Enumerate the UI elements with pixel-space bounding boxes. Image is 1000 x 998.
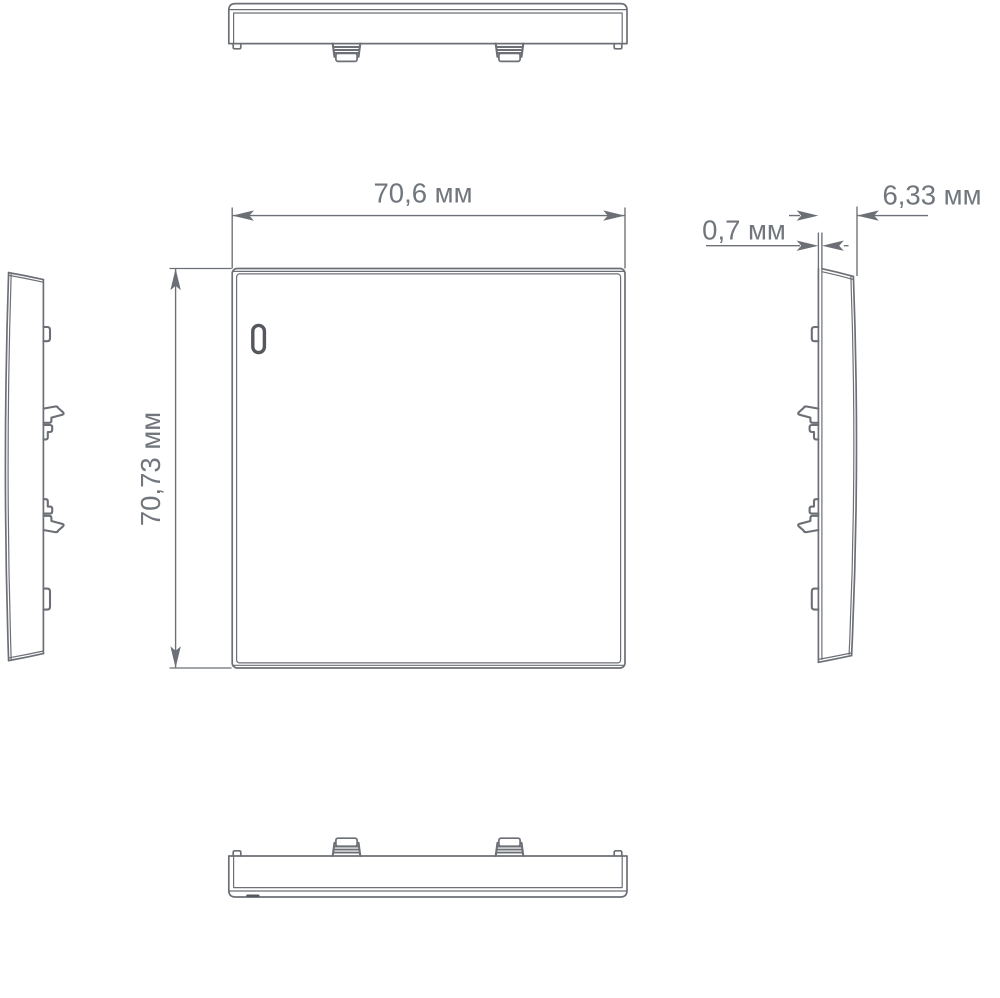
indicator-window bbox=[253, 325, 265, 352]
depth-dimension-label: 6,33 мм bbox=[883, 180, 982, 211]
mounting-clip bbox=[496, 838, 524, 856]
extension-line bbox=[232, 208, 625, 269]
bottom-tab bbox=[43, 589, 50, 610]
height-dimension-label: 70,73 мм bbox=[135, 412, 166, 526]
mounting-clip bbox=[333, 838, 361, 856]
edge-thickness-dimension-label: 0,7 мм bbox=[702, 215, 786, 246]
edge-thickness-dimension: 0,7 мм bbox=[702, 215, 848, 251]
clip-latch-box bbox=[336, 838, 357, 846]
top-view bbox=[229, 4, 627, 62]
left-side-view bbox=[5, 273, 63, 661]
front-panel-outline bbox=[232, 269, 625, 669]
latch-step bbox=[810, 425, 819, 439]
right-side-view bbox=[798, 269, 856, 663]
width-dimension-label: 70,6 мм bbox=[374, 178, 473, 209]
clip-latch-box bbox=[499, 838, 520, 846]
clip-latch-box bbox=[499, 53, 520, 61]
latch-pair-mirrored bbox=[798, 499, 818, 532]
extension-line bbox=[818, 207, 857, 277]
top-tab bbox=[43, 327, 50, 341]
bottom-tab bbox=[812, 589, 819, 610]
mounting-clip bbox=[496, 44, 524, 62]
latch-step bbox=[43, 425, 52, 439]
top-view-inner-line bbox=[234, 13, 623, 44]
latch-pair bbox=[798, 406, 818, 439]
clip-latch-box bbox=[336, 53, 357, 61]
drawing-canvas: 70,6 мм 70,73 мм bbox=[0, 0, 1000, 998]
bottom-view-inner-line bbox=[234, 856, 623, 888]
front-panel-inner-outline bbox=[237, 274, 621, 663]
height-dimension: 70,73 мм bbox=[135, 269, 232, 669]
clip-ribs bbox=[497, 847, 523, 853]
latch-pair-mirrored bbox=[43, 499, 63, 532]
front-view bbox=[232, 269, 625, 669]
side-front-face-inner bbox=[8, 273, 11, 660]
mounting-clip bbox=[333, 44, 361, 62]
latch-pair bbox=[43, 406, 63, 439]
bottom-view bbox=[229, 838, 627, 897]
depth-dimension: 6,33 мм bbox=[789, 180, 981, 277]
clip-ribs bbox=[334, 47, 360, 53]
arrowhead-left bbox=[822, 241, 844, 251]
latch-hook bbox=[798, 406, 818, 422]
extension-line bbox=[170, 269, 232, 669]
width-dimension: 70,6 мм bbox=[232, 178, 625, 269]
dimension-drawing: 70,6 мм 70,73 мм bbox=[0, 0, 1000, 998]
clip-ribs bbox=[497, 47, 523, 53]
latch-hook bbox=[43, 406, 63, 422]
top-tab bbox=[812, 327, 819, 341]
clip-ribs bbox=[334, 847, 360, 853]
